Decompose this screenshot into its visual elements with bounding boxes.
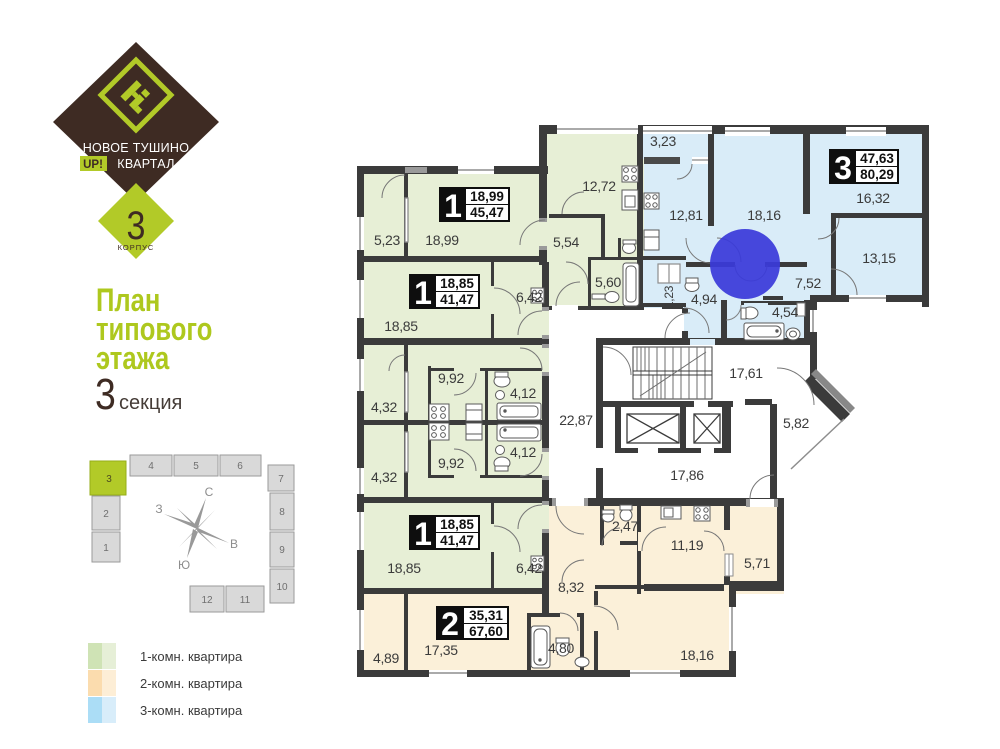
svg-text:4,32: 4,32 bbox=[371, 469, 398, 485]
svg-text:КОРПУС: КОРПУС bbox=[118, 243, 155, 252]
svg-text:41,47: 41,47 bbox=[440, 292, 474, 307]
svg-text:8,32: 8,32 bbox=[558, 579, 585, 595]
svg-text:17,35: 17,35 bbox=[424, 642, 458, 658]
svg-text:4,54: 4,54 bbox=[772, 304, 799, 320]
svg-text:3,23: 3,23 bbox=[650, 133, 677, 149]
svg-text:С: С bbox=[205, 485, 214, 499]
svg-text:9: 9 bbox=[279, 545, 285, 556]
svg-text:11,19: 11,19 bbox=[671, 537, 704, 553]
svg-text:12,81: 12,81 bbox=[669, 207, 703, 223]
svg-text:41,47: 41,47 bbox=[440, 533, 474, 548]
svg-text:4,80: 4,80 bbox=[548, 640, 575, 656]
svg-text:7: 7 bbox=[278, 474, 284, 485]
svg-text:8: 8 bbox=[279, 507, 285, 518]
svg-text:4: 4 bbox=[148, 461, 154, 472]
svg-text:1-комн. квартира: 1-комн. квартира bbox=[140, 649, 243, 664]
svg-text:З: З bbox=[155, 502, 162, 516]
svg-text:НОВОЕ ТУШИНО: НОВОЕ ТУШИНО bbox=[83, 141, 190, 155]
svg-text:9,92: 9,92 bbox=[438, 370, 465, 386]
svg-text:UP!: UP! bbox=[83, 159, 103, 171]
svg-text:2-комн. квартира: 2-комн. квартира bbox=[140, 676, 243, 691]
svg-text:18,99: 18,99 bbox=[425, 232, 459, 248]
svg-text:Ю: Ю bbox=[178, 558, 190, 572]
svg-text:18,16: 18,16 bbox=[747, 207, 781, 223]
svg-text:4,94: 4,94 bbox=[691, 291, 718, 307]
svg-text:5,71: 5,71 bbox=[744, 555, 771, 571]
svg-text:7,52: 7,52 bbox=[795, 275, 822, 291]
svg-text:1,23: 1,23 bbox=[662, 285, 676, 308]
svg-text:5,23: 5,23 bbox=[374, 232, 401, 248]
svg-text:2: 2 bbox=[103, 509, 109, 520]
svg-text:3: 3 bbox=[127, 202, 146, 247]
svg-text:18,85: 18,85 bbox=[384, 318, 418, 334]
svg-text:В: В bbox=[230, 537, 238, 551]
svg-text:11: 11 bbox=[240, 595, 251, 606]
svg-text:5,60: 5,60 bbox=[595, 274, 622, 290]
svg-text:3: 3 bbox=[834, 150, 852, 186]
svg-text:4,12: 4,12 bbox=[510, 444, 537, 460]
svg-text:1: 1 bbox=[444, 188, 462, 224]
svg-text:5: 5 bbox=[193, 461, 199, 472]
svg-text:1: 1 bbox=[103, 543, 109, 554]
svg-text:3-комн. квартира: 3-комн. квартира bbox=[140, 703, 243, 718]
svg-text:13,15: 13,15 bbox=[862, 250, 896, 266]
svg-text:2,47: 2,47 bbox=[612, 518, 639, 534]
svg-text:18,99: 18,99 bbox=[470, 189, 504, 204]
svg-text:67,60: 67,60 bbox=[469, 624, 503, 639]
svg-text:6,42: 6,42 bbox=[516, 289, 543, 305]
svg-text:45,47: 45,47 bbox=[470, 205, 504, 220]
svg-text:5,82: 5,82 bbox=[783, 415, 810, 431]
svg-text:17,86: 17,86 bbox=[670, 467, 704, 483]
svg-text:5,54: 5,54 bbox=[553, 234, 580, 250]
svg-text:10: 10 bbox=[276, 582, 288, 593]
svg-text:18,85: 18,85 bbox=[440, 517, 474, 532]
svg-text:17,61: 17,61 bbox=[729, 365, 763, 381]
svg-text:1: 1 bbox=[414, 275, 432, 311]
svg-text:1: 1 bbox=[414, 516, 432, 552]
svg-text:18,16: 18,16 bbox=[680, 647, 714, 663]
svg-text:4,12: 4,12 bbox=[510, 385, 537, 401]
svg-text:18,85: 18,85 bbox=[440, 276, 474, 291]
svg-text:12: 12 bbox=[201, 595, 213, 606]
svg-text:80,29: 80,29 bbox=[860, 167, 894, 182]
svg-text:4,89: 4,89 bbox=[373, 650, 400, 666]
svg-text:35,31: 35,31 bbox=[469, 608, 503, 623]
svg-text:6,42: 6,42 bbox=[516, 560, 543, 576]
svg-text:секция: секция bbox=[119, 392, 182, 414]
svg-text:47,63: 47,63 bbox=[860, 151, 894, 166]
svg-text:18,85: 18,85 bbox=[387, 560, 421, 576]
svg-text:3: 3 bbox=[95, 369, 116, 419]
svg-text:3: 3 bbox=[106, 474, 112, 485]
svg-text:9,92: 9,92 bbox=[438, 455, 465, 471]
svg-text:22,87: 22,87 bbox=[559, 412, 593, 428]
svg-text:6: 6 bbox=[237, 461, 243, 472]
svg-text:12,72: 12,72 bbox=[582, 178, 616, 194]
svg-text:КВАРТАЛ: КВАРТАЛ bbox=[117, 157, 174, 171]
svg-text:16,32: 16,32 bbox=[856, 190, 890, 206]
svg-text:2: 2 bbox=[441, 606, 459, 642]
svg-text:4,32: 4,32 bbox=[371, 399, 398, 415]
